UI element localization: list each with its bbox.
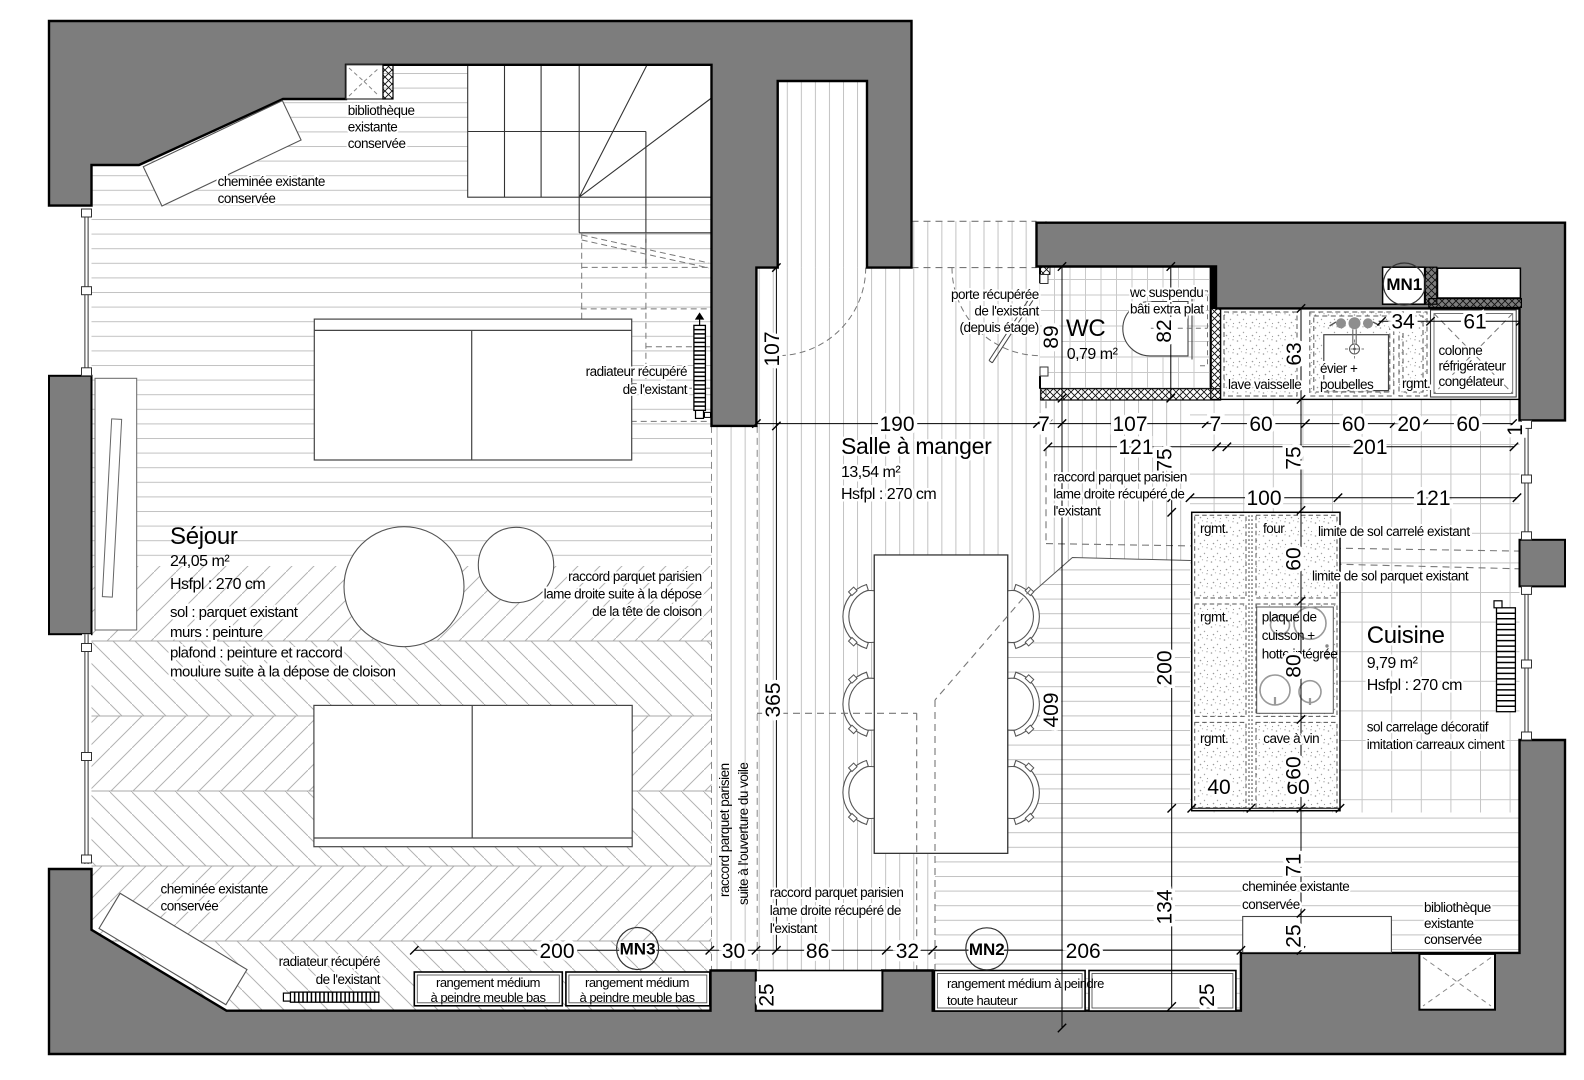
svg-text:0,79 m²: 0,79 m² [1067, 346, 1119, 363]
svg-text:rgmt.: rgmt. [1402, 376, 1430, 391]
svg-text:7: 7 [1210, 413, 1222, 436]
svg-text:60: 60 [1283, 756, 1306, 779]
svg-text:206: 206 [1066, 940, 1101, 963]
svg-text:365: 365 [762, 682, 785, 717]
svg-text:40: 40 [1207, 776, 1230, 799]
svg-text:60: 60 [1283, 547, 1306, 570]
svg-text:86: 86 [806, 940, 829, 963]
svg-text:bibliothèque: bibliothèque [348, 103, 415, 118]
svg-text:congélateur: congélateur [1439, 374, 1505, 389]
svg-text:cuisson +: cuisson + [1262, 628, 1316, 643]
svg-text:MN1: MN1 [1386, 275, 1422, 294]
svg-text:60: 60 [1249, 413, 1272, 436]
svg-text:existante: existante [348, 120, 398, 135]
svg-text:rgmt.: rgmt. [1200, 521, 1228, 536]
svg-text:conservée: conservée [348, 136, 406, 151]
svg-text:25: 25 [756, 983, 779, 1006]
svg-text:1: 1 [1504, 424, 1527, 436]
svg-text:cave à vin: cave à vin [1263, 731, 1319, 746]
svg-text:lame droite récupéré de: lame droite récupéré de [770, 903, 901, 918]
svg-text:rangement médium: rangement médium [585, 975, 689, 990]
svg-text:de l'existant: de l'existant [623, 382, 688, 397]
svg-text:Salle à manger: Salle à manger [841, 433, 992, 459]
svg-text:à peindre meuble bas: à peindre meuble bas [579, 990, 695, 1005]
svg-text:murs : peinture: murs : peinture [170, 624, 263, 641]
svg-text:Hsfpl : 270 cm: Hsfpl : 270 cm [1367, 677, 1462, 694]
svg-text:conservée: conservée [218, 191, 276, 206]
svg-text:lave vaisselle: lave vaisselle [1228, 377, 1301, 392]
svg-text:75: 75 [1283, 446, 1306, 469]
svg-text:de l'existant: de l'existant [974, 304, 1039, 319]
svg-text:poubelles: poubelles [1320, 377, 1374, 392]
svg-text:80: 80 [1283, 654, 1306, 677]
svg-text:évier +: évier + [1320, 361, 1358, 376]
svg-text:rangement médium à peindre: rangement médium à peindre [947, 976, 1104, 991]
svg-text:à peindre meuble bas: à peindre meuble bas [430, 990, 546, 1005]
svg-text:Hsfpl : 270 cm: Hsfpl : 270 cm [170, 576, 265, 593]
svg-text:60: 60 [1342, 413, 1365, 436]
svg-text:MN3: MN3 [620, 940, 656, 959]
svg-text:raccord parquet parisien: raccord parquet parisien [770, 885, 904, 900]
svg-text:rgmt.: rgmt. [1200, 731, 1228, 746]
svg-text:61: 61 [1463, 311, 1486, 334]
svg-text:l'existant: l'existant [770, 921, 818, 936]
svg-text:existante: existante [1424, 916, 1474, 931]
svg-text:201: 201 [1352, 436, 1387, 459]
svg-text:suite à l'ouverture du voile: suite à l'ouverture du voile [736, 763, 751, 905]
svg-text:sol : parquet existant: sol : parquet existant [170, 604, 299, 621]
svg-text:25: 25 [1283, 924, 1306, 947]
svg-text:63: 63 [1283, 342, 1306, 365]
svg-text:plaque de: plaque de [1262, 610, 1317, 625]
svg-text:cheminée existante: cheminée existante [218, 174, 325, 189]
svg-text:de l'existant: de l'existant [316, 972, 381, 987]
svg-text:limite de sol parquet existant: limite de sol parquet existant [1312, 569, 1469, 584]
svg-text:raccord parquet parisien: raccord parquet parisien [568, 569, 702, 584]
svg-text:rgmt.: rgmt. [1200, 610, 1228, 625]
svg-text:conservée: conservée [1242, 897, 1300, 912]
svg-text:cheminée existante: cheminée existante [1242, 879, 1349, 894]
svg-text:limite de sol carrelé existant: limite de sol carrelé existant [1318, 524, 1470, 539]
svg-text:WC: WC [1066, 315, 1105, 342]
svg-text:MN2: MN2 [969, 940, 1005, 959]
svg-text:moulure suite à la dépose de c: moulure suite à la dépose de cloison [170, 664, 396, 681]
svg-text:30: 30 [722, 940, 745, 963]
svg-text:(depuis étage): (depuis étage) [959, 320, 1038, 335]
svg-text:imitation carreaux ciment: imitation carreaux ciment [1367, 737, 1505, 752]
svg-text:82: 82 [1153, 319, 1176, 342]
svg-text:134: 134 [1154, 889, 1177, 924]
svg-text:Séjour: Séjour [170, 523, 238, 550]
svg-text:conservée: conservée [1424, 932, 1482, 947]
svg-text:100: 100 [1246, 487, 1281, 510]
svg-text:107: 107 [1112, 413, 1147, 436]
svg-text:71: 71 [1283, 853, 1306, 876]
svg-text:409: 409 [1040, 692, 1063, 727]
svg-text:colonne: colonne [1439, 343, 1483, 358]
svg-text:toute hauteur: toute hauteur [947, 993, 1018, 1008]
svg-text:9,79 m²: 9,79 m² [1367, 655, 1419, 672]
svg-text:réfrigérateur: réfrigérateur [1439, 359, 1507, 374]
svg-text:75: 75 [1154, 448, 1177, 471]
svg-text:conservée: conservée [161, 899, 219, 914]
svg-text:porte récupérée: porte récupérée [951, 287, 1039, 302]
svg-text:200: 200 [539, 940, 574, 963]
svg-text:89: 89 [1040, 325, 1063, 348]
svg-text:lame droite suite à la dépose: lame droite suite à la dépose [544, 587, 702, 602]
svg-text:32: 32 [896, 940, 919, 963]
svg-text:60: 60 [1456, 413, 1479, 436]
svg-text:radiateur récupéré: radiateur récupéré [279, 954, 380, 969]
svg-text:Cuisine: Cuisine [1367, 622, 1445, 649]
svg-text:Hsfpl : 270 cm: Hsfpl : 270 cm [841, 486, 936, 503]
svg-text:20: 20 [1397, 413, 1420, 436]
svg-text:rangement médium: rangement médium [436, 975, 540, 990]
svg-text:24,05 m²: 24,05 m² [170, 553, 230, 570]
svg-text:radiateur récupéré: radiateur récupéré [586, 364, 687, 379]
svg-text:raccord parquet parisien: raccord parquet parisien [717, 763, 732, 897]
svg-text:7: 7 [1038, 413, 1050, 436]
svg-text:25: 25 [1196, 983, 1219, 1006]
svg-text:190: 190 [879, 413, 914, 436]
svg-text:121: 121 [1118, 436, 1153, 459]
svg-text:121: 121 [1415, 487, 1450, 510]
svg-text:de la tête de cloison: de la tête de cloison [592, 604, 702, 619]
svg-text:cheminée existante: cheminée existante [161, 882, 268, 897]
svg-text:lame droite récupéré de: lame droite récupéré de [1053, 487, 1184, 502]
svg-text:bâti extra plat: bâti extra plat [1130, 302, 1204, 317]
svg-text:bibliothèque: bibliothèque [1424, 900, 1491, 915]
svg-text:plafond : peinture et raccord: plafond : peinture et raccord [170, 645, 342, 662]
svg-text:l'existant: l'existant [1053, 504, 1101, 519]
svg-text:wc suspendu: wc suspendu [1129, 285, 1203, 300]
svg-text:13,54 m²: 13,54 m² [841, 464, 901, 481]
svg-text:107: 107 [761, 331, 784, 366]
svg-text:34: 34 [1391, 311, 1415, 334]
svg-text:sol carrelage décoratif: sol carrelage décoratif [1367, 720, 1489, 735]
svg-text:200: 200 [1154, 650, 1177, 685]
svg-text:four: four [1263, 521, 1285, 536]
